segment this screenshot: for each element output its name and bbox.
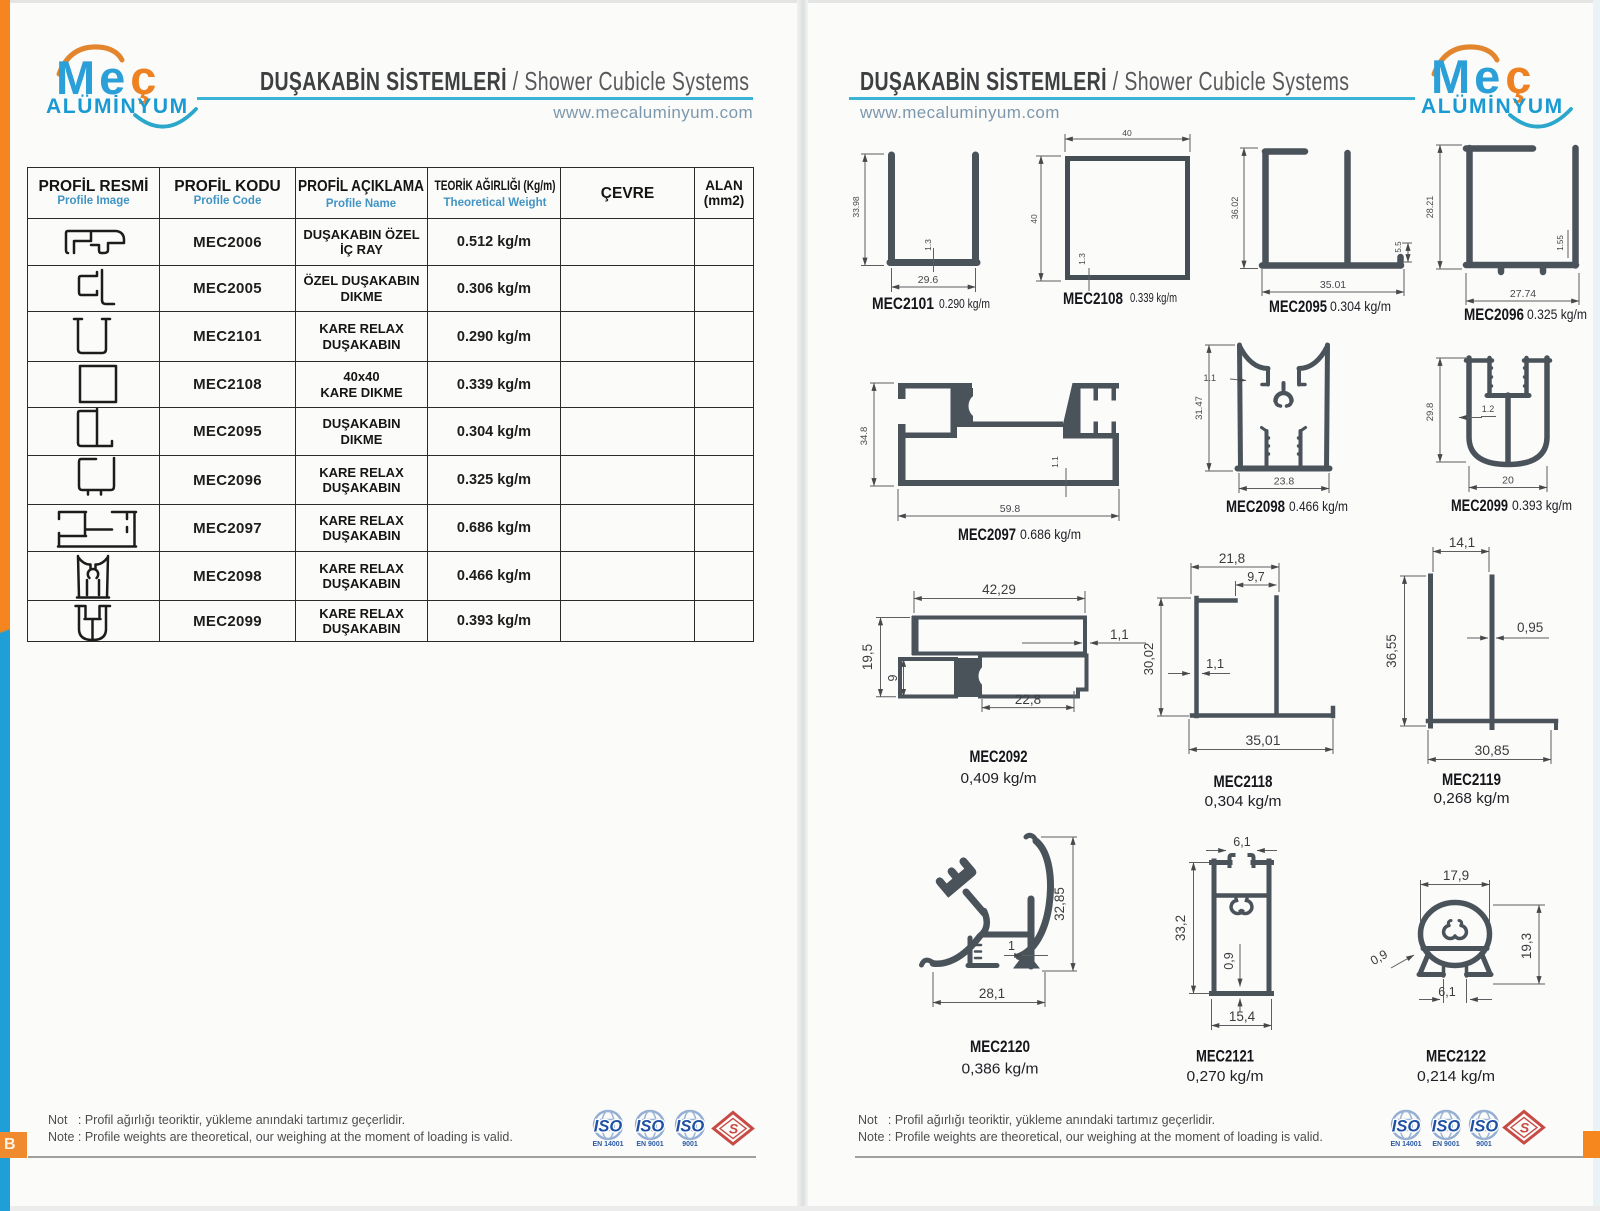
- svg-text:1.1: 1.1: [1203, 373, 1216, 383]
- svg-text:TEORİK AĞIRLIĞI (Kg/m): TEORİK AĞIRLIĞI (Kg/m): [435, 176, 556, 193]
- svg-text:MEC2096: MEC2096: [1464, 305, 1524, 324]
- svg-text:36,55: 36,55: [1384, 634, 1399, 668]
- svg-text:MEC2092: MEC2092: [970, 747, 1028, 766]
- svg-text:Theoretical Weight: Theoretical Weight: [444, 197, 547, 209]
- svg-text:0.466 kg/m: 0.466 kg/m: [1289, 499, 1348, 514]
- svg-text:0,270 kg/m: 0,270 kg/m: [1187, 1069, 1264, 1085]
- svg-text:9001: 9001: [682, 1141, 698, 1148]
- svg-text:19,3: 19,3: [1519, 933, 1534, 959]
- svg-text:30,85: 30,85: [1474, 742, 1509, 758]
- svg-text:9001: 9001: [1476, 1141, 1492, 1148]
- svg-text:0,386 kg/m: 0,386 kg/m: [962, 1062, 1039, 1078]
- svg-text:0,214 kg/m: 0,214 kg/m: [1417, 1069, 1495, 1085]
- svg-text:21,8: 21,8: [1219, 551, 1245, 566]
- svg-text:23.8: 23.8: [1274, 476, 1295, 488]
- svg-text:33.98: 33.98: [851, 196, 861, 218]
- svg-text:MEC2120: MEC2120: [970, 1037, 1030, 1056]
- svg-text:0.325 kg/m: 0.325 kg/m: [1527, 307, 1587, 322]
- svg-text:MEC2101: MEC2101: [872, 294, 934, 313]
- svg-text:32,85: 32,85: [1052, 887, 1067, 921]
- svg-text:1,1: 1,1: [1206, 656, 1224, 671]
- svg-text:0,409 kg/m: 0,409 kg/m: [961, 771, 1037, 787]
- svg-text:MEC2097: MEC2097: [958, 525, 1016, 544]
- svg-text:MEC2122: MEC2122: [1426, 1047, 1486, 1066]
- svg-text:29.8: 29.8: [1425, 403, 1436, 422]
- svg-text:Profile Name: Profile Name: [326, 198, 396, 210]
- svg-text:42,29: 42,29: [982, 582, 1016, 597]
- svg-text:ALÜMİNYUM: ALÜMİNYUM: [46, 95, 189, 118]
- svg-text:14,1: 14,1: [1449, 535, 1475, 550]
- svg-text:EN 9001: EN 9001: [1432, 1141, 1459, 1148]
- svg-text:1.3: 1.3: [923, 239, 933, 251]
- svg-text:40: 40: [1029, 214, 1039, 224]
- svg-text:33,2: 33,2: [1173, 915, 1188, 941]
- svg-text:MEC2095: MEC2095: [1269, 297, 1327, 316]
- svg-text:15,4: 15,4: [1229, 1009, 1256, 1024]
- svg-text:35.01: 35.01: [1320, 279, 1346, 291]
- svg-text:29.6: 29.6: [918, 274, 939, 286]
- svg-text:0.393 kg/m: 0.393 kg/m: [1512, 498, 1572, 513]
- svg-text:1.1: 1.1: [1050, 456, 1060, 468]
- svg-text:28.21: 28.21: [1425, 196, 1435, 219]
- svg-text:6,1: 6,1: [1438, 985, 1455, 999]
- svg-text:0.290 kg/m: 0.290 kg/m: [939, 296, 990, 311]
- svg-text:1.2: 1.2: [1482, 404, 1495, 414]
- svg-text:0,304 kg/m: 0,304 kg/m: [1205, 794, 1282, 810]
- svg-text:6,1: 6,1: [1233, 835, 1250, 849]
- svg-text:MEC2098: MEC2098: [1226, 497, 1285, 516]
- svg-text:40: 40: [1122, 128, 1132, 138]
- svg-text:MEC2118: MEC2118: [1214, 772, 1273, 791]
- svg-text:9,7: 9,7: [1247, 570, 1264, 584]
- svg-text:36.02: 36.02: [1230, 197, 1240, 220]
- svg-text:MEC2099: MEC2099: [1451, 496, 1508, 515]
- svg-text:EN 9001: EN 9001: [636, 1141, 663, 1148]
- svg-text:22,8: 22,8: [1015, 692, 1041, 707]
- svg-text:EN 14001: EN 14001: [1390, 1141, 1421, 1148]
- svg-text:0,95: 0,95: [1517, 620, 1543, 635]
- svg-text:0,9: 0,9: [1222, 952, 1236, 969]
- svg-text:1,1: 1,1: [1110, 627, 1129, 642]
- svg-text:0.686 kg/m: 0.686 kg/m: [1020, 527, 1081, 542]
- svg-text:MEC2119: MEC2119: [1442, 770, 1501, 789]
- svg-text:PROFİL AÇIKLAMA: PROFİL AÇIKLAMA: [298, 178, 424, 195]
- svg-text:30,02: 30,02: [1141, 643, 1156, 676]
- svg-text:0,9: 0,9: [1368, 947, 1390, 968]
- svg-text:35,01: 35,01: [1245, 732, 1280, 748]
- svg-text:5.5: 5.5: [1394, 241, 1403, 253]
- svg-text:MEC2121: MEC2121: [1196, 1047, 1254, 1066]
- svg-text:0.339 kg/m: 0.339 kg/m: [1130, 291, 1177, 305]
- svg-text:MEC2108: MEC2108: [1063, 289, 1123, 308]
- svg-text:27.74: 27.74: [1510, 288, 1536, 300]
- svg-text:19,5: 19,5: [860, 644, 875, 670]
- svg-text:17,9: 17,9: [1443, 868, 1469, 883]
- svg-text:ALÜMİNYUM: ALÜMİNYUM: [1421, 95, 1564, 118]
- svg-text:9: 9: [886, 674, 900, 681]
- svg-text:0,268 kg/m: 0,268 kg/m: [1434, 791, 1510, 807]
- svg-text:0.304 kg/m: 0.304 kg/m: [1330, 299, 1391, 314]
- svg-text:20: 20: [1502, 475, 1514, 487]
- svg-text:1.55: 1.55: [1556, 235, 1565, 251]
- svg-text:EN 14001: EN 14001: [592, 1141, 623, 1148]
- svg-text:59.8: 59.8: [1000, 503, 1021, 515]
- svg-text:1: 1: [1008, 939, 1015, 953]
- svg-text:1.3: 1.3: [1077, 253, 1087, 265]
- svg-text:34.8: 34.8: [859, 427, 870, 446]
- svg-text:31.47: 31.47: [1194, 396, 1205, 420]
- svg-text:28,1: 28,1: [979, 986, 1005, 1001]
